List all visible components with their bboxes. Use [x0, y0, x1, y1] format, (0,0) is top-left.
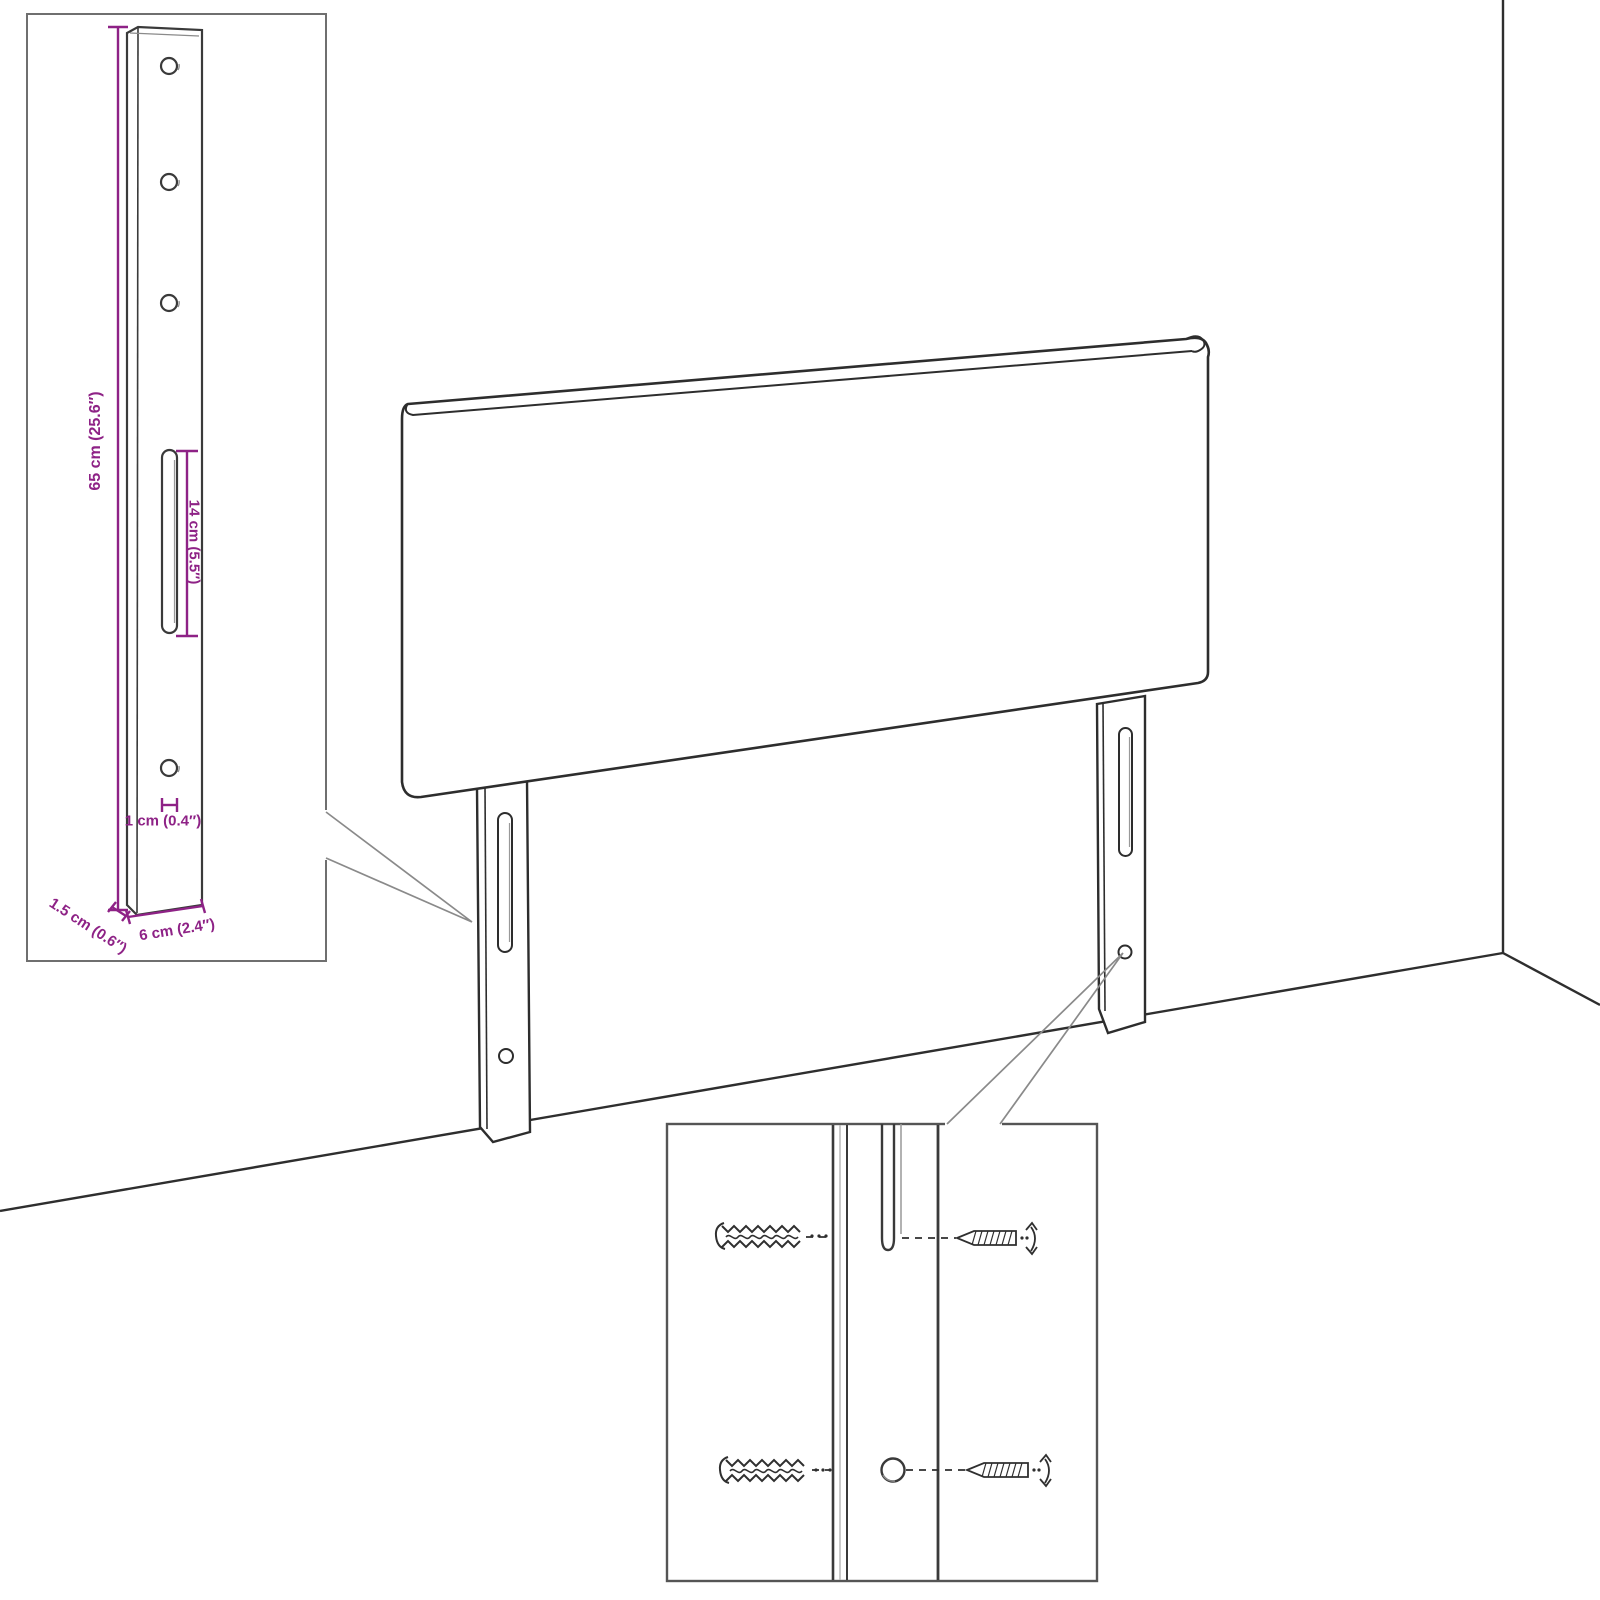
floor-line-right: [1503, 953, 1600, 1005]
height-dimension-label: 65 cm (25.6″): [87, 391, 105, 490]
left-leg-hole: [499, 1049, 513, 1063]
hole-diameter-dimension-label: 1 cm (0.4″): [125, 813, 201, 830]
slot-length-dimension-label: 14 cm (5.5″): [186, 500, 203, 585]
left-leg: [477, 780, 530, 1142]
bracket-callout-wedge: [326, 812, 472, 922]
callout-lines: [326, 812, 1123, 1124]
headboard-panel: [402, 336, 1209, 797]
screw-callout-wedge: [947, 953, 1123, 1124]
right-leg: [1097, 696, 1145, 1033]
diagram-linework: [0, 0, 1600, 1600]
assembly-diagram: 65 cm (25.6″) 14 cm (5.5″) 1 cm (0.4″) 1…: [0, 0, 1600, 1600]
bracket-side-edge-line: [137, 27, 138, 913]
